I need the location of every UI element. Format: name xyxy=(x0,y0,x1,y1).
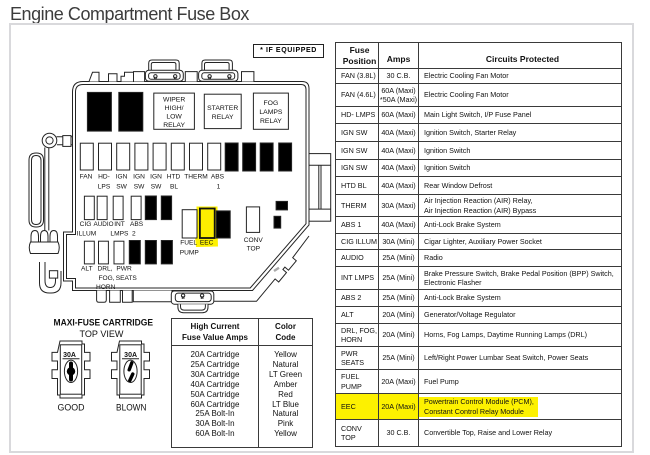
svg-text:RELAY: RELAY xyxy=(260,118,282,125)
svg-text:ABS: ABS xyxy=(130,221,144,228)
svg-text:PWR: PWR xyxy=(116,266,132,273)
svg-text:RELAY: RELAY xyxy=(163,122,185,129)
svg-text:30A: 30A xyxy=(124,352,137,359)
svg-text:IGN: IGN xyxy=(116,174,128,181)
svg-text:TOP: TOP xyxy=(247,246,261,253)
svg-text:IGN: IGN xyxy=(133,174,145,181)
svg-text:SW: SW xyxy=(151,184,162,191)
svg-text:SEATS: SEATS xyxy=(116,275,138,282)
svg-text:PUMP: PUMP xyxy=(180,250,200,257)
svg-text:FOG: FOG xyxy=(264,100,279,107)
svg-text:LMPS: LMPS xyxy=(110,231,129,238)
svg-text:HIGH/: HIGH/ xyxy=(165,105,184,112)
svg-text:IGN: IGN xyxy=(150,174,162,181)
svg-text:SW: SW xyxy=(134,184,145,191)
svg-text:ABS: ABS xyxy=(211,174,225,181)
svg-text:HORN: HORN xyxy=(96,284,116,291)
svg-text:HD-: HD- xyxy=(98,174,110,181)
svg-text:LPS: LPS xyxy=(98,184,111,191)
svg-text:SW: SW xyxy=(116,184,127,191)
svg-text:THERM: THERM xyxy=(184,174,207,181)
svg-text:INT: INT xyxy=(114,221,125,228)
svg-text:TOP VIEW: TOP VIEW xyxy=(80,329,125,339)
svg-text:FUEL: FUEL xyxy=(180,240,197,247)
svg-text:LOW: LOW xyxy=(166,114,182,121)
svg-text:BL: BL xyxy=(170,184,178,191)
svg-text:BLOWN: BLOWN xyxy=(116,403,147,413)
svg-text:CIG: CIG xyxy=(80,221,92,228)
svg-text:WIPER: WIPER xyxy=(163,97,185,104)
svg-text:RELAY: RELAY xyxy=(212,114,234,121)
svg-text:LAMPS: LAMPS xyxy=(259,109,283,116)
svg-text:1: 1 xyxy=(217,184,221,191)
svg-text:EEC: EEC xyxy=(200,240,214,247)
svg-text:MAXI-FUSE CARTRIDGE: MAXI-FUSE CARTRIDGE xyxy=(54,318,154,328)
svg-text:30A: 30A xyxy=(63,352,76,359)
svg-text:STARTER: STARTER xyxy=(207,105,238,112)
svg-text:2: 2 xyxy=(132,231,136,238)
svg-text:HTD: HTD xyxy=(167,174,181,181)
svg-text:AUDIO: AUDIO xyxy=(94,221,114,228)
svg-text:FAN: FAN xyxy=(80,174,93,181)
svg-text:DRL,: DRL, xyxy=(98,266,113,273)
svg-text:ILLUM: ILLUM xyxy=(77,231,96,238)
svg-text:ALT: ALT xyxy=(81,266,93,273)
svg-text:CONV: CONV xyxy=(244,237,264,244)
svg-text:GOOD: GOOD xyxy=(58,403,85,413)
svg-text:FOG,: FOG, xyxy=(99,275,115,282)
